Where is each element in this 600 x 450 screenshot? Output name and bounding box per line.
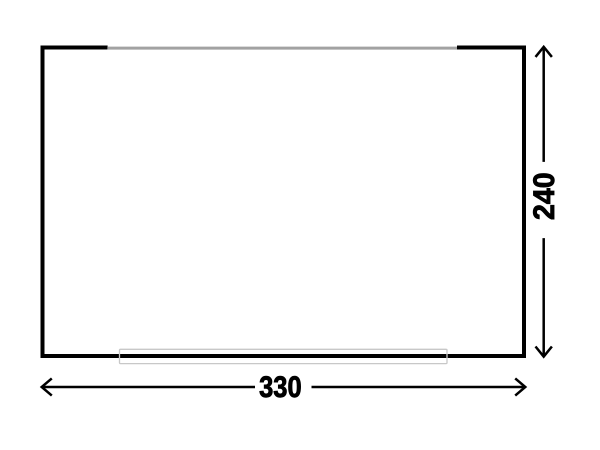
svg-text:240: 240 bbox=[528, 172, 561, 220]
svg-text:330: 330 bbox=[259, 371, 302, 404]
